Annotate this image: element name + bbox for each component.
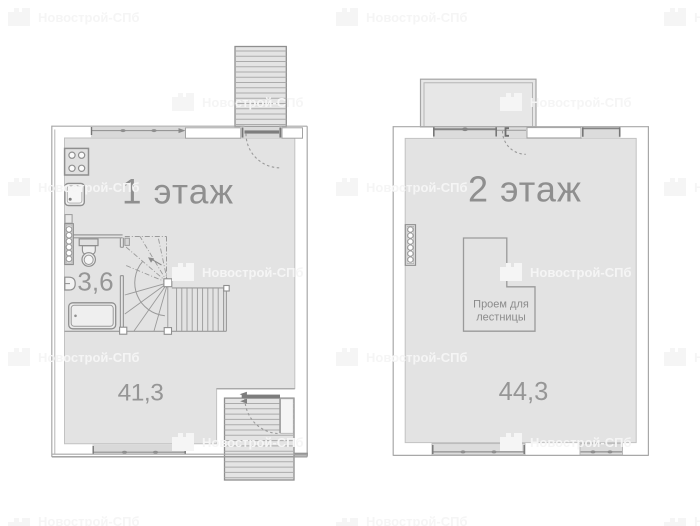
svg-text:Новострой-СПб: Новострой-СПб (38, 10, 139, 25)
svg-text:Новострой-СПб: Новострой-СПб (38, 514, 139, 526)
svg-text:41,3: 41,3 (118, 380, 164, 407)
svg-text:Проем для: Проем для (473, 299, 529, 311)
svg-text:лестницы: лестницы (476, 312, 526, 324)
svg-text:Новострой-СПб: Новострой-СПб (530, 95, 631, 110)
svg-text:Новострой-СПб: Новострой-СПб (694, 10, 700, 25)
svg-text:Новострой-СПб: Новострой-СПб (530, 265, 631, 280)
svg-text:Новострой-СПб: Новострой-СПб (694, 514, 700, 526)
svg-text:3,6: 3,6 (77, 267, 113, 297)
svg-text:Новострой-СПб: Новострой-СПб (202, 265, 303, 280)
svg-text:Новострой-СПб: Новострой-СПб (38, 350, 139, 365)
svg-text:Новострой-СПб: Новострой-СПб (38, 180, 139, 195)
svg-text:Новострой-СПб: Новострой-СПб (366, 180, 467, 195)
svg-text:44,3: 44,3 (499, 378, 549, 406)
svg-text:Новострой-СПб: Новострой-СПб (366, 350, 467, 365)
svg-text:Новострой-СПб: Новострой-СПб (202, 435, 303, 450)
svg-text:2 этаж: 2 этаж (468, 169, 581, 210)
svg-text:Новострой-СПб: Новострой-СПб (694, 350, 700, 365)
svg-text:Новострой-СПб: Новострой-СПб (366, 10, 467, 25)
svg-text:Новострой-СПб: Новострой-СПб (202, 95, 303, 110)
svg-text:Новострой-СПб: Новострой-СПб (694, 180, 700, 195)
svg-text:Новострой-СПб: Новострой-СПб (366, 514, 467, 526)
svg-text:Новострой-СПб: Новострой-СПб (530, 435, 631, 450)
